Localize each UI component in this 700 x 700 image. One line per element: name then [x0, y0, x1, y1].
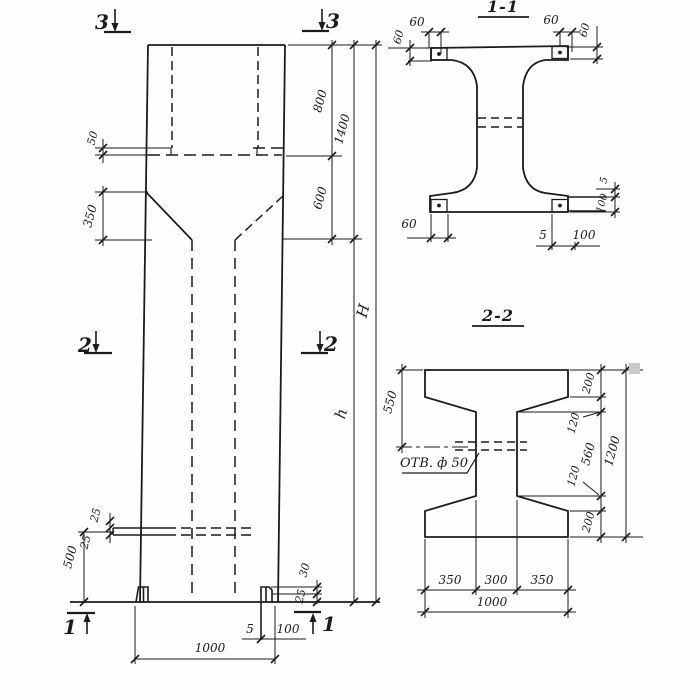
dim-60-top-left-h: 60	[409, 15, 425, 29]
arrow-down-icon	[319, 22, 326, 31]
dim-120-bottom: 120	[565, 464, 583, 488]
marker-2-right-label: 2	[323, 332, 338, 356]
dim-neck-600: 600	[310, 185, 330, 211]
ledge-hidden-lines	[148, 148, 284, 155]
recess-hidden-edges	[172, 47, 258, 148]
dim-overall-H: H	[353, 301, 374, 320]
section-1-1-labels: 1-1 60 60 60 60 60 5 100 5 100	[391, 0, 611, 242]
dim-recess-800: 800	[310, 88, 330, 114]
section-1-1-outline	[430, 46, 568, 212]
arrow-down-icon	[317, 344, 324, 353]
hole-label: ОТВ. ф 50	[400, 456, 468, 471]
anchor-dot-icon	[437, 52, 441, 56]
section-2-2-outline	[425, 370, 568, 537]
anchor-dot-icon	[558, 51, 562, 55]
section-2-2-dim-ticks	[398, 366, 630, 616]
embed-plate-top-right	[552, 47, 568, 59]
dim-120-top: 120	[565, 411, 583, 435]
section-2-2-title: 2-2	[481, 306, 514, 325]
section-1-1-dim-lines	[388, 26, 620, 250]
ledge-lines	[95, 148, 257, 155]
section-marker-3-right	[302, 9, 329, 31]
arrow-up-icon	[310, 613, 317, 622]
embed-part-hidden	[166, 528, 252, 535]
dim-5-right: 5	[598, 176, 610, 185]
anchor-dot-icon	[437, 204, 441, 208]
dim-350-left: 350	[439, 573, 462, 587]
marker-2-left-label: 2	[77, 333, 92, 357]
scan-artifact	[629, 363, 640, 374]
section-2-2	[396, 326, 643, 618]
dim-5-bottom: 5	[539, 228, 547, 242]
dim-60-top-left-v: 60	[391, 29, 407, 46]
embed-plate-bottom-left	[431, 200, 447, 213]
dim-60-bottom-left: 60	[401, 217, 417, 231]
embed-part-solid	[113, 528, 166, 535]
section-1-1-dim-ticks	[406, 28, 619, 250]
embed-plate-bottom-right	[552, 200, 568, 213]
arrow-down-icon	[112, 23, 119, 32]
dim-1000-bottom: 1000	[477, 595, 508, 609]
dim-60-top-right-v: 60	[577, 22, 593, 39]
dim-head-1400: 1400	[331, 112, 353, 145]
dim-350-right: 350	[531, 573, 554, 587]
dim-560: 560	[578, 441, 598, 467]
section-1-1	[388, 17, 620, 250]
dim-1200: 1200	[601, 434, 623, 467]
dim-200-bottom: 200	[579, 510, 597, 535]
channel-hidden-edges	[192, 240, 235, 596]
dim-200-top: 200	[579, 371, 597, 396]
elevation-labels: 3 3 2 2 1 1 50 350 800 600 1400 H h 25 2…	[60, 9, 373, 655]
dim-300: 300	[485, 573, 508, 587]
dim-base-100: 100	[277, 622, 300, 636]
dim-foot-30: 30	[297, 562, 313, 579]
drawing-sheet: 3 3 2 2 1 1 50 350 800 600 1400 H h 25 2…	[0, 0, 700, 700]
arrow-up-icon	[84, 613, 91, 622]
marker-1-right-label: 1	[322, 612, 336, 636]
dim-100-right: 100	[595, 192, 611, 214]
embed-plate-top-left	[431, 48, 447, 60]
dim-500: 500	[60, 544, 80, 570]
section-2-2-dim-lines	[396, 364, 643, 618]
marker-1-left-label: 1	[63, 615, 77, 639]
dim-width-1000: 1000	[195, 641, 226, 655]
taper-hidden-edge	[235, 196, 283, 240]
technical-drawing: 3 3 2 2 1 1 50 350 800 600 1400 H h 25 2…	[0, 0, 700, 700]
marker-3-left-label: 3	[95, 10, 109, 34]
arrow-down-icon	[93, 344, 100, 353]
dim-60-top-right-h: 60	[543, 13, 559, 27]
dim-taper-350: 350	[80, 203, 100, 229]
dim-embed-25-lower: 25	[77, 534, 93, 552]
base-foot-right	[261, 587, 272, 640]
dim-ledge-50: 50	[85, 130, 101, 147]
section-1-1-title: 1-1	[487, 0, 519, 16]
marker-3-right-label: 3	[326, 9, 340, 33]
section-2-2-labels: 2-2 550 ОТВ. ф 50 200 120 560 120 200 12…	[380, 306, 623, 609]
head-taper-edge	[146, 192, 192, 240]
dim-100-bottom: 100	[573, 228, 596, 242]
dim-shaft-h: h	[331, 407, 351, 421]
column-outline	[70, 45, 380, 602]
anchor-dot-icon	[558, 204, 562, 208]
web-hole-hidden	[478, 118, 522, 127]
dim-embed-25-upper: 25	[87, 507, 103, 525]
dim-550: 550	[380, 389, 400, 415]
base-foot-left	[136, 587, 148, 602]
dim-base-5: 5	[246, 622, 254, 636]
